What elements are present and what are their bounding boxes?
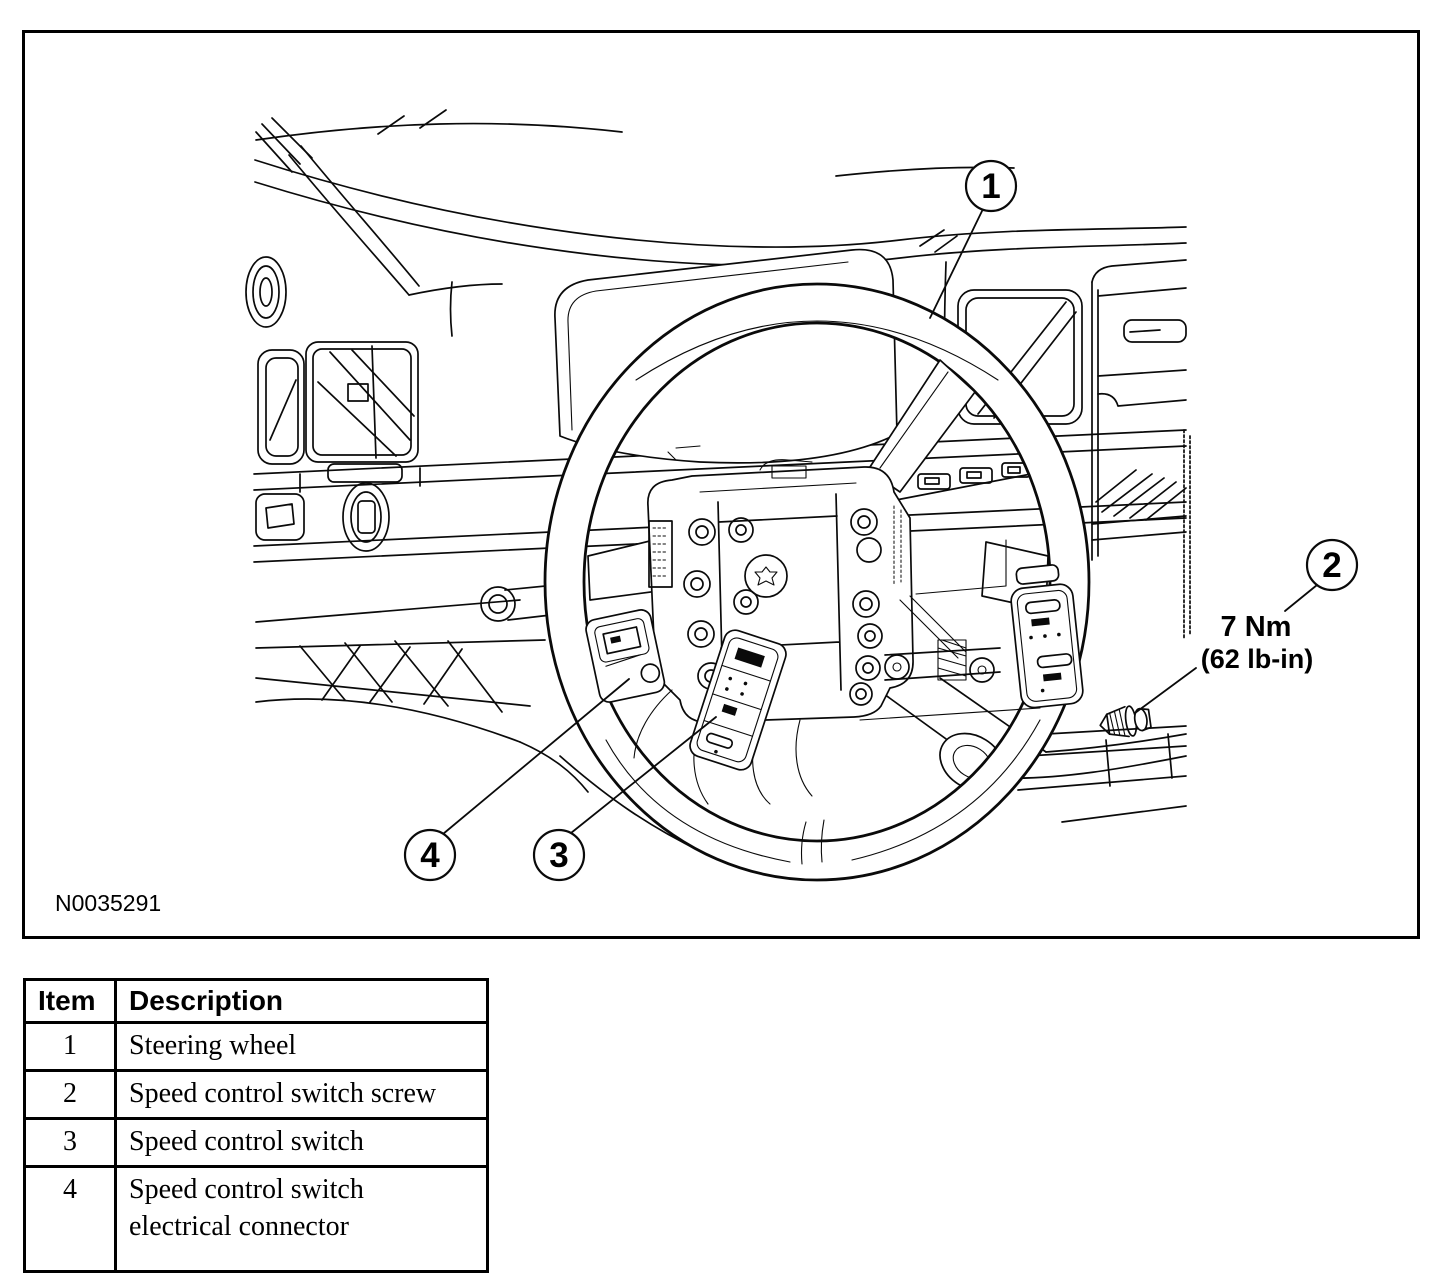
service-manual-page: 1 2 3 4 7 Nm (62 lb-in) N0035291	[0, 0, 1456, 1274]
airbag-hub	[634, 460, 913, 804]
legend-row-2-item: 2	[25, 1070, 116, 1118]
callout-4: 4	[405, 830, 455, 880]
legend-header-item: Item	[25, 980, 116, 1023]
legend-row-2-description: Speed control switch screw	[116, 1070, 488, 1118]
speed-control-switch-screw	[1098, 704, 1152, 741]
legend-header-row: Item Description	[25, 980, 488, 1023]
callout-1-number: 1	[981, 167, 1000, 206]
steering-wheel-diagram: 1 2 3 4 7 Nm (62 lb-in) N0035291	[25, 33, 1417, 936]
torque-note-metric: 7 Nm	[1221, 611, 1292, 643]
legend-row-1-item: 1	[25, 1023, 116, 1071]
legend-row-4-description: Speed control switch electrical connecto…	[116, 1166, 488, 1271]
legend-row-3-description: Speed control switch	[116, 1118, 488, 1166]
figure-box: 1 2 3 4 7 Nm (62 lb-in) N0035291	[22, 30, 1420, 939]
legend-row-4: 4 Speed control switch electrical connec…	[25, 1166, 488, 1271]
legend-row-3: 3 Speed control switch	[25, 1118, 488, 1166]
legend-row-1: 1 Steering wheel	[25, 1023, 488, 1071]
legend-row-1-description: Steering wheel	[116, 1023, 488, 1071]
callout-2: 2	[1307, 540, 1357, 590]
callout-2-leader	[1285, 585, 1317, 611]
callout-1: 1	[966, 161, 1016, 211]
callout-3: 3	[534, 830, 584, 880]
callout-3-number: 3	[549, 836, 568, 875]
legend-header-description: Description	[116, 980, 488, 1023]
torque-note-imperial: (62 lb-in)	[1201, 644, 1314, 674]
legend-row-2: 2 Speed control switch screw	[25, 1070, 488, 1118]
legend-row-3-item: 3	[25, 1118, 116, 1166]
screw-leader	[1135, 668, 1196, 713]
callout-4-number: 4	[420, 836, 440, 875]
legend-table: Item Description 1 Steering wheel 2 Spee…	[23, 978, 489, 1273]
figure-id: N0035291	[55, 890, 161, 916]
legend-row-4-item: 4	[25, 1166, 116, 1271]
callout-2-number: 2	[1322, 546, 1341, 585]
callout-1-leader	[930, 209, 983, 318]
